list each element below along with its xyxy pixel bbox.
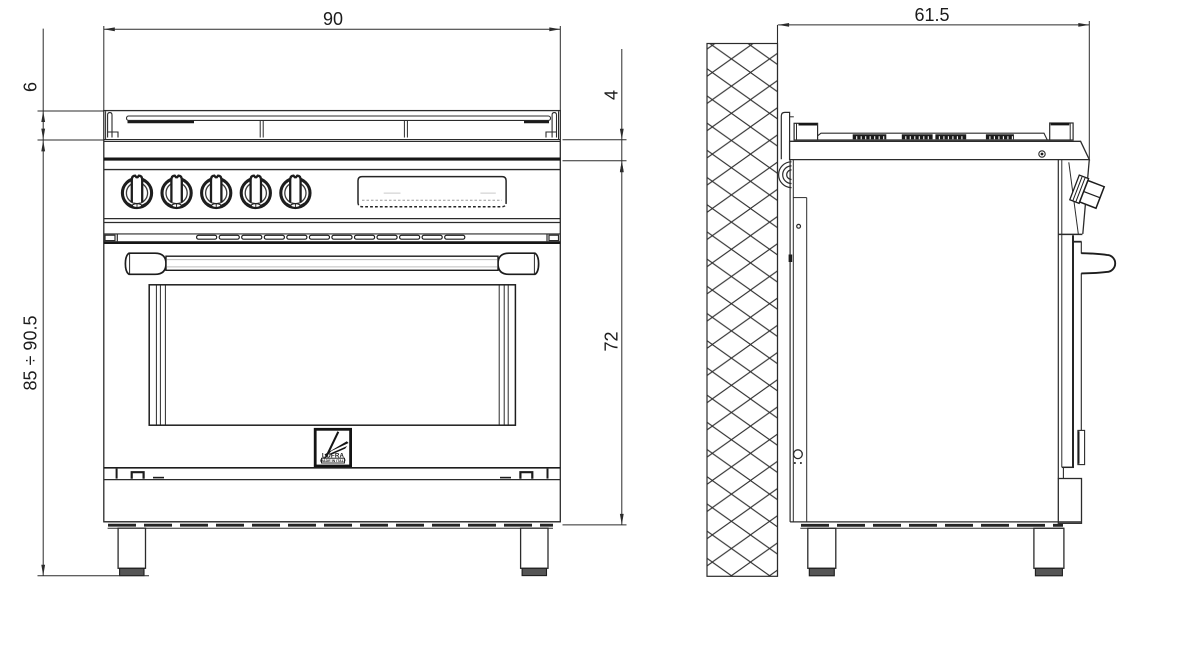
svg-text:61.5: 61.5 (914, 5, 949, 25)
svg-text:MADE IN ITALY: MADE IN ITALY (320, 459, 347, 463)
svg-text:90: 90 (323, 9, 343, 29)
svg-text:85 ÷ 90.5: 85 ÷ 90.5 (21, 316, 41, 391)
svg-text:4: 4 (601, 90, 621, 100)
svg-text:72: 72 (601, 331, 621, 351)
svg-text:6: 6 (21, 82, 41, 92)
